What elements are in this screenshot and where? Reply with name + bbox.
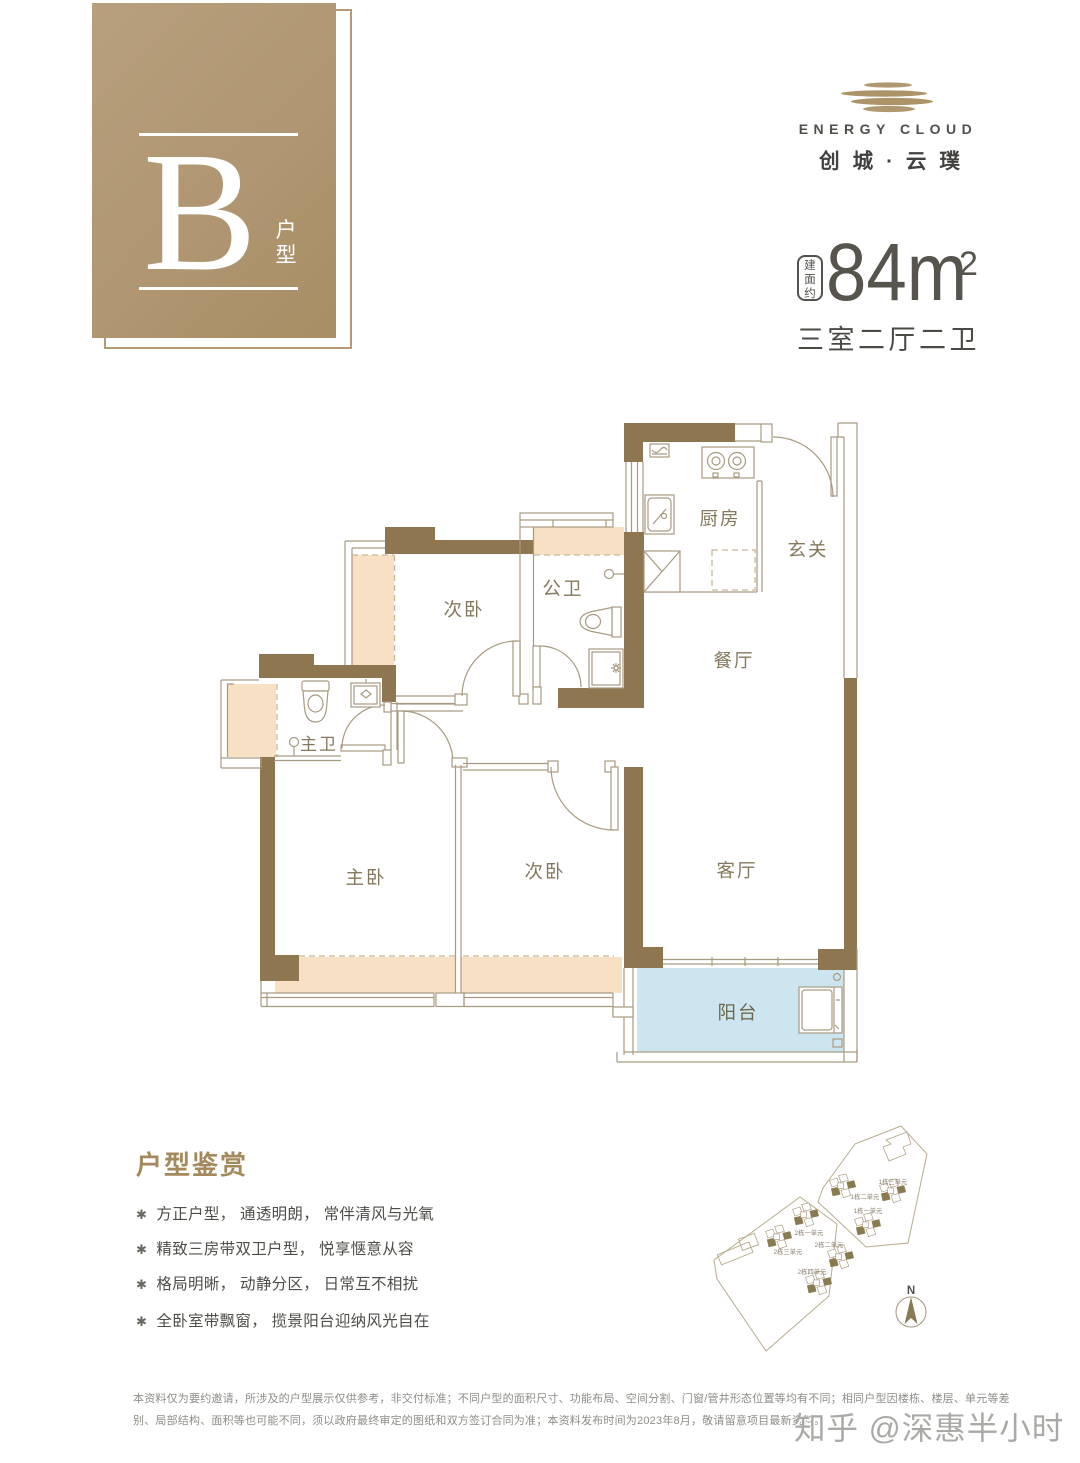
svg-text:客厅: 客厅 bbox=[716, 860, 757, 881]
svg-text:2栋一单元: 2栋一单元 bbox=[795, 1228, 824, 1237]
svg-text:次卧: 次卧 bbox=[524, 861, 565, 882]
svg-text:主卫: 主卫 bbox=[300, 735, 338, 754]
svg-text:玄关: 玄关 bbox=[787, 539, 828, 560]
svg-text:N: N bbox=[907, 1285, 915, 1297]
svg-text:1栋三单元: 1栋三单元 bbox=[879, 1177, 908, 1186]
svg-text:1栋一单元: 1栋一单元 bbox=[854, 1206, 883, 1215]
svg-text:1栋二单元: 1栋二单元 bbox=[851, 1192, 880, 1201]
svg-text:阳台: 阳台 bbox=[717, 1002, 758, 1023]
svg-text:次卧: 次卧 bbox=[443, 599, 484, 620]
svg-text:2栋三单元: 2栋三单元 bbox=[774, 1247, 803, 1256]
svg-text:餐厅: 餐厅 bbox=[713, 650, 754, 671]
svg-text:2栋二单元: 2栋二单元 bbox=[815, 1240, 844, 1249]
svg-text:2栋四单元: 2栋四单元 bbox=[798, 1267, 827, 1276]
svg-text:公卫: 公卫 bbox=[542, 578, 583, 599]
svg-text:主卧: 主卧 bbox=[345, 867, 386, 888]
svg-text:厨房: 厨房 bbox=[699, 508, 740, 529]
